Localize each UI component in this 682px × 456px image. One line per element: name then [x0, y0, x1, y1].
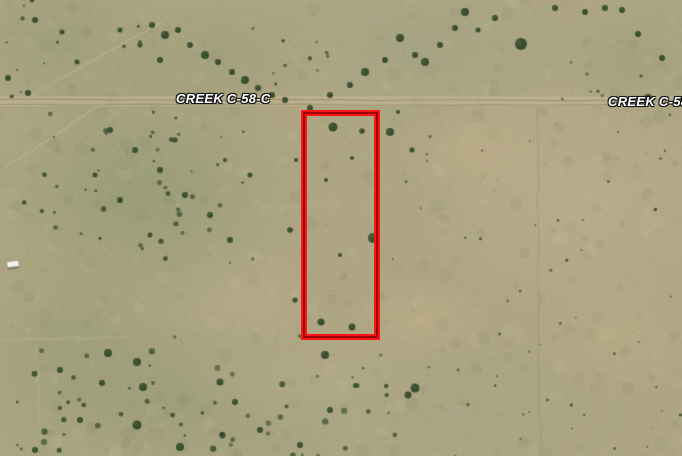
road-label-creek-c-58-c-right: CREEK C-58-C: [608, 94, 682, 109]
road-label-creek-c-58-c-left: CREEK C-58-C: [176, 91, 271, 106]
map-viewport: CREEK C-58-C CREEK C-58-C: [0, 0, 682, 456]
parcel-boundary-overlay[interactable]: [307, 116, 374, 334]
